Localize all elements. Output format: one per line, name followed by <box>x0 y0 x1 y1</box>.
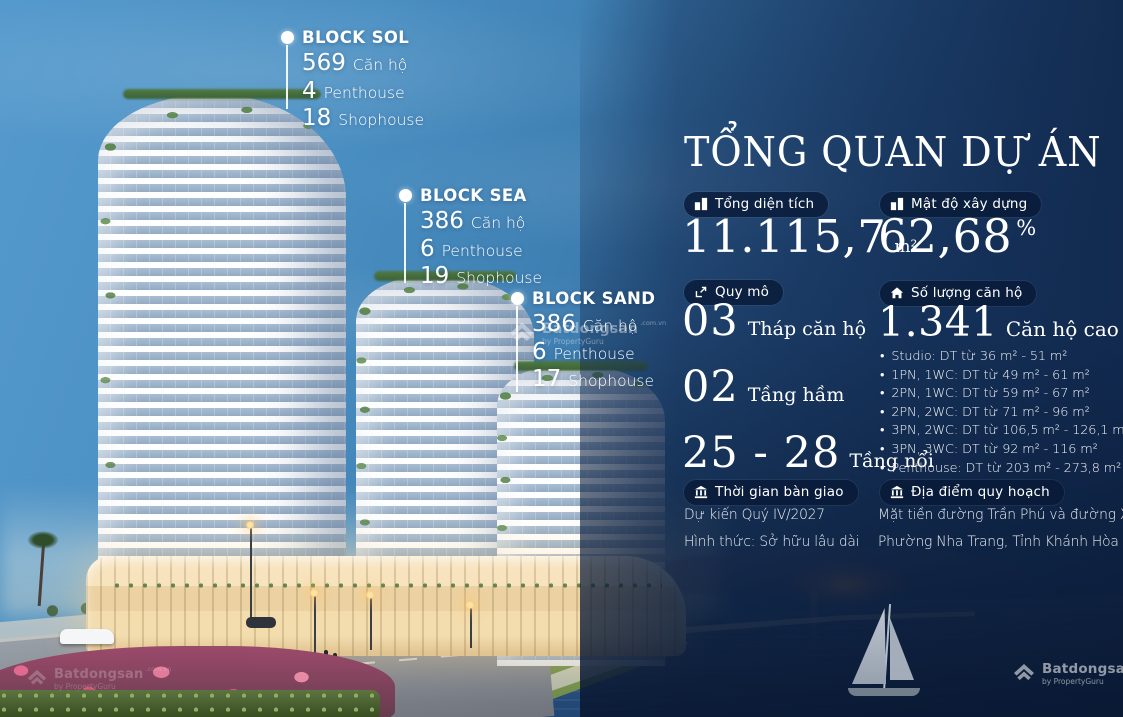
handover-line1: Dự kiến Quý IV/2027 <box>684 507 825 523</box>
scale-label: Tháp căn hộ <box>748 318 866 340</box>
street-lamp-pole <box>370 598 372 650</box>
apartments-label: Căn hộ cao cấp <box>1006 317 1123 341</box>
stat-value: 6 <box>420 237 435 263</box>
bank-icon <box>694 485 708 499</box>
project-overview-poster: BLOCK SOL 569Căn hộ 4Penthouse 18Shophou… <box>0 0 1123 717</box>
street-lamp-light <box>309 588 319 598</box>
scale-basements: 02 Tầng hầm <box>682 366 844 409</box>
callout-block-sol: BLOCK SOL 569Căn hộ 4Penthouse 18Shophou… <box>302 28 424 134</box>
page-title: TỔNG QUAN DỰ ÁN <box>684 128 1102 176</box>
density-unit: % <box>1016 216 1036 240</box>
badge-location: Địa điểm quy hoạch <box>880 480 1064 505</box>
stat-label: Penthouse <box>442 239 523 265</box>
badge-label: Địa điểm quy hoạch <box>911 484 1050 500</box>
callout-leader-line <box>286 45 288 109</box>
handover-line2: Hình thức: Sở hữu lâu dài <box>684 534 859 550</box>
stat-value: 18 <box>302 106 331 132</box>
stat-label: Penthouse <box>324 81 405 107</box>
callout-dot <box>281 31 294 44</box>
scale-label: Tầng hầm <box>748 384 845 406</box>
block-stat: 17Shophouse <box>532 367 655 395</box>
apartment-type-item: Penthouse: DT từ 203 m² - 273,8 m² <box>880 460 1123 479</box>
buildings-icon <box>694 197 708 211</box>
block-stat: 569Căn hộ <box>302 51 424 79</box>
block-name: BLOCK SAND <box>532 289 655 308</box>
watermark-brand: Batdongsan <box>54 668 143 681</box>
badge-handover: Thời gian bàn giao <box>684 480 858 505</box>
street-lamp-pole <box>250 528 252 620</box>
stat-label: Shophouse <box>338 108 424 134</box>
density-value: 62,68 % <box>878 213 1036 259</box>
palm-tree-leaves <box>22 528 64 552</box>
block-stat: 386Căn hộ <box>420 209 542 237</box>
block-stat: 6Penthouse <box>420 237 542 265</box>
batdongsan-logo-icon <box>508 320 536 348</box>
scale-value: 02 <box>682 366 739 409</box>
scale-towers: 03 Tháp căn hộ <box>682 300 866 343</box>
street-lamp-pole <box>470 608 472 648</box>
dark-car <box>246 617 276 628</box>
density-number: 62,68 <box>878 213 1012 259</box>
tower-block-sol <box>98 94 346 624</box>
apartment-type-item: 3PN, 3WC: DT từ 92 m² - 116 m² <box>880 441 1123 460</box>
watermark-domain: .com.vn <box>640 320 666 327</box>
batdongsan-logo-icon <box>1012 662 1036 686</box>
block-name: BLOCK SEA <box>420 186 542 205</box>
block-stat: 18Shophouse <box>302 106 424 134</box>
watermark-domain: .com.vn <box>145 666 171 673</box>
street-lamp-pole <box>314 596 316 656</box>
scale-value: 25 - 28 <box>682 432 840 475</box>
callout-leader-line <box>404 203 406 283</box>
hedge <box>0 690 380 717</box>
apartment-type-item: 1PN, 1WC: DT từ 49 m² - 61 m² <box>880 367 1123 386</box>
scale-value: 03 <box>682 300 739 343</box>
apartment-type-item: Studio: DT từ 36 m² - 51 m² <box>880 348 1123 367</box>
stat-value: 386 <box>420 209 464 235</box>
apartment-type-item: 3PN, 2WC: DT từ 106,5 m² - 126,1 m² <box>880 422 1123 441</box>
street-lamp-light <box>245 520 255 530</box>
watermark-bottom-left: Batdongsan.com.vn by PropertyGuru <box>26 668 171 691</box>
callout-block-sea: BLOCK SEA 386Căn hộ 6Penthouse 19Shophou… <box>420 186 542 292</box>
apartment-type-item: 2PN, 2WC: DT từ 71 m² - 96 m² <box>880 404 1123 423</box>
badge-label: Thời gian bàn giao <box>715 484 844 500</box>
apartments-number: 1.341 <box>878 302 998 343</box>
callout-dot <box>511 292 524 305</box>
block-name: BLOCK SOL <box>302 28 424 47</box>
block-stat: 4Penthouse <box>302 79 424 107</box>
street-lamp-light <box>365 590 375 600</box>
location-line1: Mặt tiền đường Trần Phú và đường Xóm Cồn… <box>878 507 1123 523</box>
apartment-type-list: Studio: DT từ 36 m² - 51 m² 1PN, 1WC: DT… <box>880 348 1123 478</box>
watermark-brand: Batdongsan <box>542 322 638 336</box>
stat-label: Căn hộ <box>353 53 407 79</box>
location-line2: Phường Nha Trang, Tỉnh Khánh Hòa <box>878 534 1119 550</box>
watermark-bottom-right: Batdongsan.com.vn by PropertyGuru <box>1012 662 1123 686</box>
watermark-byline: by PropertyGuru <box>542 338 666 346</box>
batdongsan-logo-icon <box>26 668 48 690</box>
stat-label: Căn hộ <box>471 211 525 237</box>
stat-value: 569 <box>302 51 346 77</box>
stat-value: 19 <box>420 264 449 290</box>
watermark-byline: by PropertyGuru <box>54 683 171 691</box>
area-number: 11.115,7 <box>682 214 886 259</box>
project-overview-panel: TỔNG QUAN DỰ ÁN Tổng diện tích 11.115,7 … <box>640 0 1123 717</box>
stat-value: 4 <box>302 79 317 105</box>
stat-label: Shophouse <box>456 266 542 292</box>
street-lamp-light <box>465 600 475 610</box>
apartment-type-item: 2PN, 1WC: DT từ 59 m² - 67 m² <box>880 385 1123 404</box>
white-car <box>60 629 114 644</box>
watermark-center: Batdongsan.com.vn by PropertyGuru <box>508 320 666 348</box>
stat-value: 17 <box>532 367 561 393</box>
watermark-brand: Batdongsan <box>1042 663 1123 677</box>
bank-icon <box>890 485 904 499</box>
callout-dot <box>399 189 412 202</box>
apartments-value: 1.341 Căn hộ cao cấp <box>878 302 1123 343</box>
block-stat: 19Shophouse <box>420 264 542 292</box>
callout-leader-line <box>516 306 518 392</box>
watermark-byline: by PropertyGuru <box>1042 678 1123 686</box>
